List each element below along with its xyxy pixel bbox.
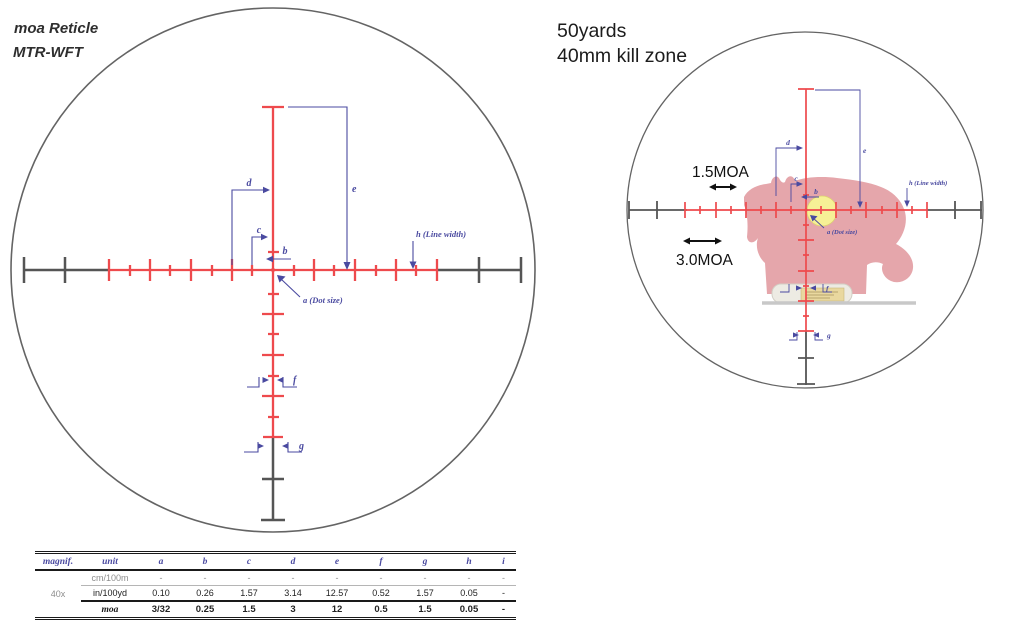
col-header-magnif: magnif. <box>35 553 81 571</box>
col-header-unit: unit <box>81 553 139 571</box>
table-header-row: magnif. unit a b c d e f g h i <box>35 553 516 571</box>
right-reticle-diagram: 50yards 40mm kill zone e d c b f g a (Do… <box>557 20 983 388</box>
value-cell: - <box>183 570 227 586</box>
table-row-in100yd: in/100yd 0.10 0.26 1.57 3.14 12.57 0.52 … <box>35 586 516 602</box>
value-cell: - <box>491 586 516 602</box>
value-cell: 12.57 <box>315 586 359 602</box>
distance-label: 50yards <box>557 20 627 42</box>
dim-label-f: f <box>293 375 298 386</box>
value-cell: - <box>271 570 315 586</box>
reticle-spec-table: magnif. unit a b c d e f g h i 40x cm/10… <box>35 551 516 620</box>
value-cell: 0.05 <box>447 586 491 602</box>
value-cell: - <box>491 570 516 586</box>
value-cell: 0.25 <box>183 601 227 619</box>
value-cell: 0.5 <box>359 601 403 619</box>
column-header: h <box>447 553 491 571</box>
dim-label-e: e <box>352 184 357 195</box>
column-header: g <box>403 553 447 571</box>
value-cell: - <box>403 570 447 586</box>
value-cell: 0.05 <box>447 601 491 619</box>
dim-label-g: g <box>826 331 831 340</box>
magnification-cell: 40x <box>35 570 81 619</box>
dim-label-h-line-width: h (Line width) <box>909 180 947 187</box>
killzone-label: 40mm kill zone <box>557 45 687 67</box>
column-header: b <box>183 553 227 571</box>
column-header: d <box>271 553 315 571</box>
dim-label-b: b <box>814 187 818 196</box>
value-cell: - <box>359 570 403 586</box>
dim-label-e: e <box>863 146 867 155</box>
value-cell: - <box>315 570 359 586</box>
dim-label-c: c <box>257 225 262 236</box>
left-reticle-diagram: moa Reticle MTR-WFT e d c b f g a (Dot s… <box>11 8 535 532</box>
value-cell: 3/32 <box>139 601 183 619</box>
value-cell: 0.26 <box>183 586 227 602</box>
table-row-moa: moa 3/32 0.25 1.5 3 12 0.5 1.5 0.05 - <box>35 601 516 619</box>
dim-label-b: b <box>283 246 288 257</box>
value-cell: 0.52 <box>359 586 403 602</box>
column-header: i <box>491 553 516 571</box>
reticle-diagrams-canvas: moa Reticle MTR-WFT e d c b f g a (Dot s… <box>0 0 1024 636</box>
dim-label-d: d <box>247 178 253 189</box>
value-cell: 1.5 <box>227 601 271 619</box>
diagram-title: moa Reticle <box>14 20 98 37</box>
value-cell: 1.5 <box>403 601 447 619</box>
moa-annotation-small: 1.5MOA <box>692 164 750 181</box>
dim-label-h-line-width: h (Line width) <box>416 229 466 239</box>
column-header: a <box>139 553 183 571</box>
value-cell: 3 <box>271 601 315 619</box>
table-row-cm100m: 40x cm/100m - - - - - - - - - <box>35 570 516 586</box>
dim-label-a-dot-size: a (Dot size) <box>303 295 343 305</box>
dimension-lines <box>232 107 413 452</box>
value-cell: - <box>447 570 491 586</box>
moa-annotation-large: 3.0MOA <box>676 252 734 269</box>
center-dot <box>271 268 275 272</box>
dim-label-a-dot-size: a (Dot size) <box>827 229 857 236</box>
unit-cell: cm/100m <box>81 570 139 586</box>
dimension-arrowheads <box>258 187 417 449</box>
diagram-subtitle: MTR-WFT <box>13 44 85 61</box>
unit-cell: moa <box>81 601 139 619</box>
value-cell: - <box>227 570 271 586</box>
value-cell: 0.10 <box>139 586 183 602</box>
value-cell: 1.57 <box>227 586 271 602</box>
value-cell: 3.14 <box>271 586 315 602</box>
dim-label-g: g <box>298 441 304 452</box>
value-cell: - <box>491 601 516 619</box>
center-dot <box>804 208 807 211</box>
unit-cell: in/100yd <box>81 586 139 602</box>
column-header: c <box>227 553 271 571</box>
bait-can-label <box>801 288 844 301</box>
column-header: e <box>315 553 359 571</box>
reticle-spec-page: moa Reticle MTR-WFT e d c b f g a (Dot s… <box>0 0 1024 636</box>
column-header: f <box>359 553 403 571</box>
value-cell: 12 <box>315 601 359 619</box>
value-cell: - <box>139 570 183 586</box>
value-cell: 1.57 <box>403 586 447 602</box>
dim-label-d: d <box>786 138 790 147</box>
kill-zone-circle <box>807 196 837 226</box>
